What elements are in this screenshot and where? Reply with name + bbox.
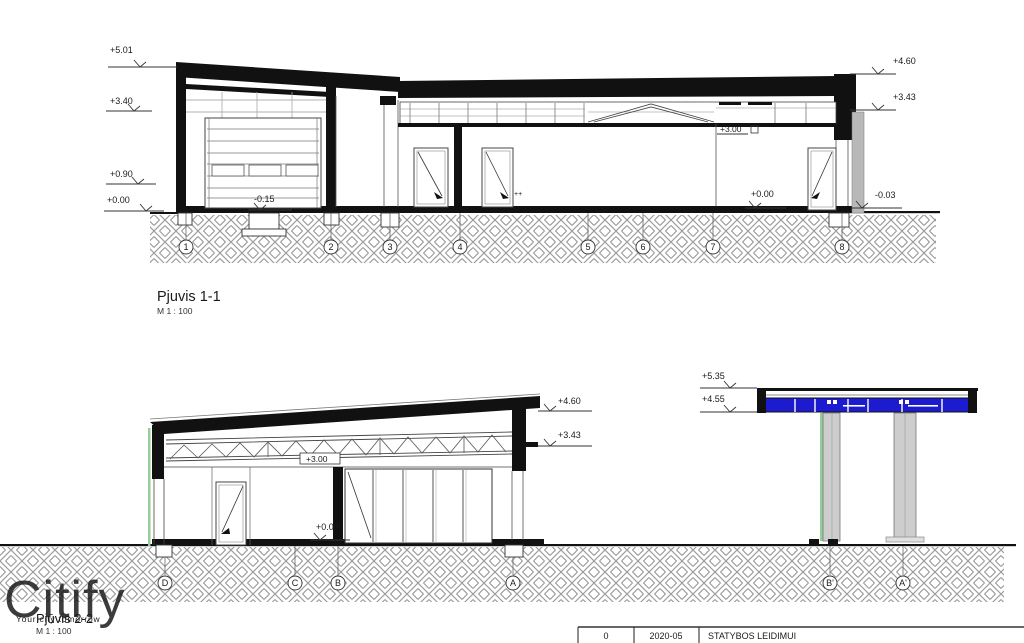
grid-bubble-7: 7	[710, 242, 715, 252]
column-b-pad-2	[828, 539, 838, 545]
pit-recess	[249, 213, 279, 229]
canopy-roof-line	[757, 388, 978, 391]
door-grid4-left	[414, 148, 448, 207]
parapet-grid-a	[512, 409, 526, 471]
garage-door-window-3	[286, 165, 318, 176]
grid-bubble-c: C	[292, 578, 299, 588]
level-label: +3.00	[306, 454, 328, 464]
fascia-grid-d	[152, 425, 164, 479]
level-label: +0.00	[316, 522, 339, 532]
level-label: +3.43	[893, 92, 916, 102]
footing-grid8	[829, 213, 849, 227]
canopy-column-b	[823, 413, 840, 541]
level-mark-3-00-interior-s2: +3.00	[300, 453, 340, 464]
partition-grid-b	[333, 467, 343, 545]
wall-grid1	[176, 64, 186, 213]
storefront-glazing	[345, 469, 492, 543]
roof-drain-mark-1	[719, 102, 741, 105]
level-label: +5.35	[702, 371, 725, 381]
titleblock-revision: 0	[603, 631, 608, 641]
titleblock-date: 2020-05	[649, 631, 682, 641]
architectural-drawing: ++ +5.01 +3.40 +0.90 +0.00 -0.15	[0, 0, 1024, 643]
fascia-fixing-mark-2	[833, 400, 837, 404]
door-grid4-right	[482, 148, 513, 207]
grid-bubble-b: B	[335, 578, 341, 588]
level-label: +0.00	[107, 195, 130, 205]
fascia-dash-2	[908, 405, 938, 407]
grid-bubble-4: 4	[457, 242, 462, 252]
garage-door-window-1	[212, 165, 244, 176]
level-label: +0.90	[110, 169, 133, 179]
grid-bubble-8: 8	[839, 242, 844, 252]
grade-line-left	[150, 212, 180, 214]
level-label: +3.43	[558, 430, 581, 440]
drawing-sheet: ++ +5.01 +3.40 +0.90 +0.00 -0.15	[0, 0, 1024, 643]
section2-title: Pjūvis 2-2	[36, 611, 93, 626]
column-a-base-plate	[886, 537, 924, 542]
fascia-fixing-mark-3	[899, 400, 903, 404]
column-b-pad-1	[809, 539, 819, 545]
grid-bubble-5: 5	[585, 242, 590, 252]
grid-bubble-2: 2	[328, 242, 333, 252]
level-label: +0.00	[751, 189, 774, 199]
canopy-blue-fascia	[762, 398, 972, 412]
column-b-green-edge	[820, 413, 823, 541]
footing-grid2	[324, 213, 339, 225]
door-grid-d	[216, 482, 246, 545]
section1-title: Pjuvis 1-1	[157, 289, 221, 305]
door-grid8	[808, 148, 836, 210]
clerestory-bottom-beam	[398, 123, 836, 127]
grid-bubble-a: A	[510, 578, 516, 588]
garage-door-window-2	[249, 165, 281, 176]
footing-grid-d	[156, 545, 172, 557]
grid-bubble-d: D	[162, 578, 169, 588]
fascia-fixing-mark-1	[827, 400, 831, 404]
fascia-dash-1	[843, 405, 865, 407]
footing-grid1	[178, 213, 192, 225]
grid-bubble-3: 3	[387, 242, 392, 252]
section2-scale: M 1 : 100	[36, 626, 72, 636]
green-boundary-line	[148, 428, 151, 546]
grid-bubble-b-prime: B'	[826, 578, 834, 588]
level-label: +4.60	[558, 396, 581, 406]
detail-plus-marks: ++	[514, 191, 522, 198]
level-label: -0.15	[254, 194, 275, 204]
canopy-end-cap-right	[968, 388, 977, 413]
fascia-fixing-mark-4	[905, 400, 909, 404]
beam-detail-grid3	[380, 96, 396, 105]
grid-bubble-6: 6	[640, 242, 645, 252]
grid-bubble-1: 1	[183, 242, 188, 252]
roof-drain-mark-2	[748, 102, 772, 105]
wall-grid2	[326, 86, 336, 207]
level-label: -0.03	[875, 190, 896, 200]
level-label: +3.00	[720, 124, 742, 134]
level-label: +3.40	[110, 96, 133, 106]
titleblock-stage: STATYBOS LEIDIMUI	[708, 631, 796, 641]
footing-grid-a	[505, 545, 523, 557]
pit-base	[242, 229, 286, 236]
canopy-end-cap-left	[757, 388, 766, 413]
level-label: +4.60	[893, 56, 916, 66]
section1-scale: M 1 : 100	[157, 306, 193, 316]
partition-grid4	[454, 124, 462, 207]
roof-edge-bar	[524, 442, 538, 447]
level-label: +4.55	[702, 394, 725, 404]
wall-beyond-gray	[852, 112, 864, 213]
ground-hatch-section2	[0, 547, 1004, 602]
grid-bubble-a-prime: A'	[899, 578, 907, 588]
level-label: +5.01	[110, 45, 133, 55]
